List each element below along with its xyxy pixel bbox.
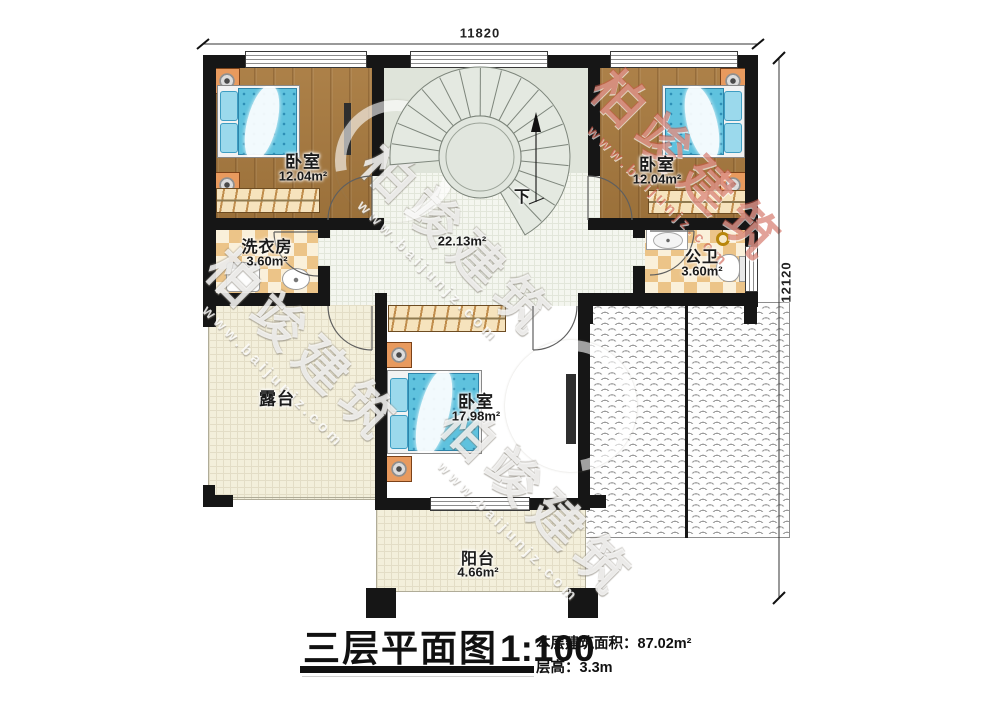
floor-area-label: 本层建筑面积： (536, 636, 638, 652)
room-area-bedroom-left: 12.04m² (279, 169, 327, 184)
stair-landing (439, 116, 521, 198)
room-area-laundry: 3.60m² (246, 254, 287, 269)
floor-height-value: 3.3m (580, 660, 613, 676)
door-arc (328, 306, 372, 350)
floorplan: 柏竣建筑 www.baijunjz.com 柏竣建筑 www.baijunjz.… (0, 0, 1000, 706)
floor-area-info: 本层建筑面积：87.02m² (536, 632, 692, 653)
dimension-top-label: 11820 (460, 26, 500, 41)
title-underline-thin (302, 676, 534, 677)
room-area-hallway: 22.13m² (438, 234, 486, 249)
floor-height-label: 层高： (536, 660, 580, 676)
plan-title-text: 三层平面图 (303, 628, 498, 669)
room-area-bedroom-master: 17.98m² (452, 409, 500, 424)
room-area-balcony: 4.66m² (457, 565, 498, 580)
stairs-doors-dims-overlay (0, 0, 1000, 706)
stair-direction-label: 下 (514, 183, 530, 207)
room-area-bedroom-right: 12.04m² (633, 172, 681, 187)
door-arc (328, 176, 372, 220)
title-underline (300, 666, 534, 673)
floor-height-info: 层高：3.3m (536, 656, 613, 677)
dimension-right-label: 12120 (779, 261, 794, 302)
room-label-terrace: 露台 (259, 385, 295, 410)
room-area-bathroom: 3.60m² (681, 264, 722, 279)
floor-area-value: 87.02m² (638, 636, 692, 652)
door-arc (588, 176, 632, 220)
door-arc (533, 306, 577, 350)
